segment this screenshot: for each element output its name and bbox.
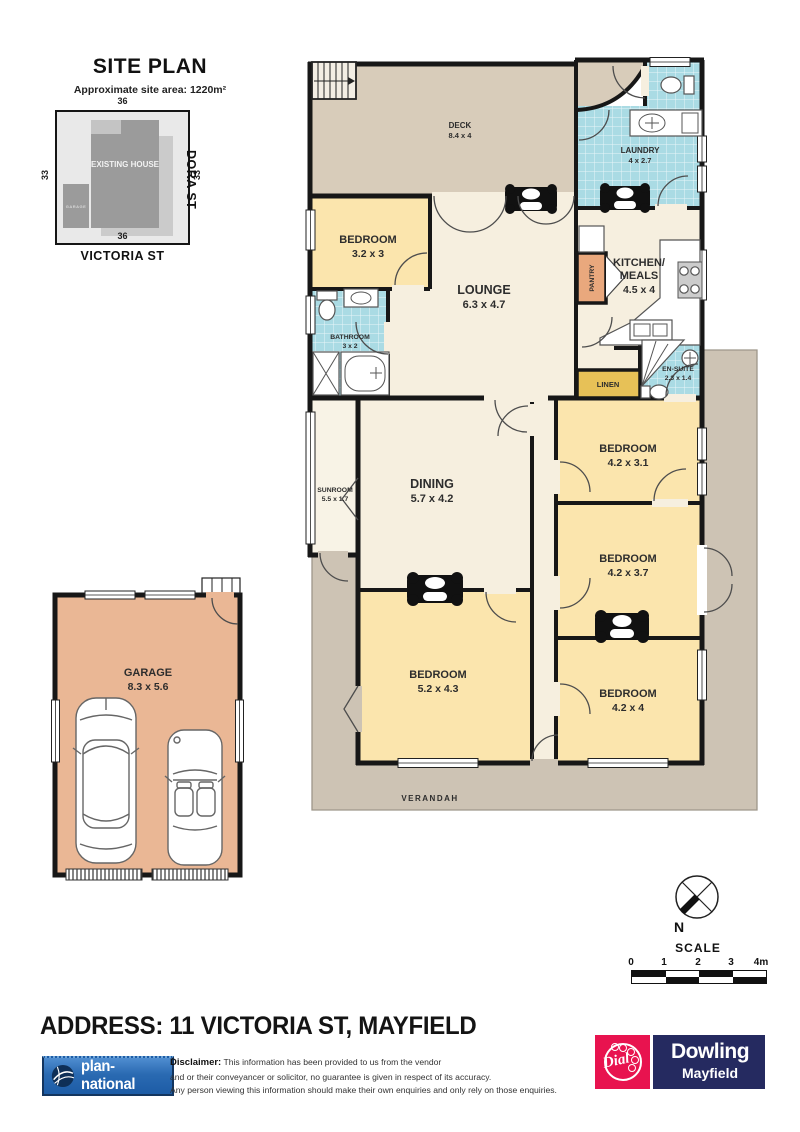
bedroom1-dims: 3.2 x 3 <box>352 248 384 260</box>
fridge-space <box>579 226 604 252</box>
agency-name-block: Dowling Mayfield <box>650 1035 765 1089</box>
bathroom-dims: 3 x 2 <box>342 343 357 350</box>
scale-tick-1: 1 <box>661 957 667 968</box>
main-floor-plan: DECK 8.4 x 4 LAUNDRY 4 x 2.7 BEDROOM 3.2… <box>300 55 762 827</box>
laundry-sink <box>630 110 702 136</box>
garage-door-gap <box>206 592 234 599</box>
kitchen-label-1: KITCHEN/ <box>613 257 665 269</box>
scale-tick-3: 3 <box>728 957 734 968</box>
site-dim-bottom: 36 <box>55 231 190 241</box>
garage-label: GARAGE <box>124 667 172 679</box>
floorplan-page: SITE PLAN Approximate site area: 1220m² … <box>0 0 800 1132</box>
street-victoria: VICTORIA ST <box>55 249 190 263</box>
pantry-label: PANTRY <box>589 264 596 292</box>
disclaimer-label: Disclaimer: <box>170 1057 221 1068</box>
site-plan-subtitle: Approximate site area: 1220m² <box>30 84 270 96</box>
dial-badge: Dial <box>595 1035 650 1089</box>
scale-ticks: 0 1 2 3 4m <box>628 957 768 970</box>
disclaimer-line-2: and or their conveyancer or solicitor, n… <box>170 1072 491 1082</box>
laundry-label: LAUNDRY <box>621 146 660 155</box>
garage-dims: 8.3 x 5.6 <box>128 681 169 693</box>
disclaimer: Disclaimer: This information has been pr… <box>170 1056 562 1097</box>
bedroom2-label: BEDROOM <box>599 443 656 455</box>
wc-toilet <box>661 76 694 94</box>
scale-tick-0: 0 <box>628 957 634 968</box>
site-dim-top: 36 <box>55 96 190 106</box>
kitchen-dims: 4.5 x 4 <box>623 284 655 296</box>
bedroom5-label: BEDROOM <box>599 688 656 700</box>
scale-bar: SCALE 0 1 2 3 4m <box>628 941 768 984</box>
address-line: ADDRESS: 11 VICTORIA ST, MAYFIELD <box>40 1012 476 1041</box>
bedroom1-label: BEDROOM <box>339 234 396 246</box>
deck-dims: 8.4 x 4 <box>449 131 473 140</box>
verandah-label: VERANDAH <box>401 794 458 803</box>
scale-title: SCALE <box>628 941 768 955</box>
ensuite-dims: 2.3 x 1.4 <box>665 375 692 382</box>
plan-national-label: plan-national <box>81 1058 162 1094</box>
bedroom3-dims: 4.2 x 3.7 <box>608 567 649 579</box>
site-garage-box: GARAGE <box>63 184 89 228</box>
agency-logo: Dial Dowling Mayfield <box>595 1035 765 1089</box>
scale-bar-graphic <box>631 970 767 984</box>
street-dora: DORA ST <box>184 150 198 240</box>
scale-tick-4: 4m <box>754 957 768 968</box>
plan-national-logo: plan-national <box>42 1056 174 1096</box>
site-dim-left: 33 <box>40 170 50 180</box>
bedroom5-dims: 4.2 x 4 <box>612 702 644 714</box>
compass: N <box>660 870 736 940</box>
ensuite-label: EN-SUITE <box>662 366 694 373</box>
scale-tick-2: 2 <box>695 957 701 968</box>
site-house-porch <box>91 120 121 134</box>
sunroom-dims: 5.5 x 1.7 <box>322 496 349 503</box>
bathroom-label: BATHROOM <box>330 334 370 341</box>
car-sedan <box>73 698 139 863</box>
lounge-label: LOUNGE <box>457 283 510 297</box>
site-plan-title: SITE PLAN <box>40 55 260 79</box>
garage-step <box>202 578 240 593</box>
linen-label: LINEN <box>597 380 620 389</box>
site-garage-label: GARAGE <box>66 204 87 209</box>
bedroom5-room <box>556 638 702 763</box>
dining-label: DINING <box>410 477 454 491</box>
site-existing-house <box>91 120 159 228</box>
garage-roller-door-2 <box>152 869 228 880</box>
deck-label: DECK <box>449 121 472 130</box>
globe-icon <box>50 1062 76 1090</box>
lounge-dims: 6.3 x 4.7 <box>463 299 506 311</box>
bedroom2-dims: 4.2 x 3.1 <box>608 457 649 469</box>
agency-suburb: Mayfield <box>653 1065 767 1081</box>
site-plot: EXISTING HOUSE GARAGE <box>55 110 190 245</box>
bedroom3-label: BEDROOM <box>599 553 656 565</box>
sunroom-label: SUNROOM <box>317 487 353 494</box>
compass-north-label: N <box>674 919 684 935</box>
garage-plan: GARAGE 8.3 x 5.6 <box>40 575 252 890</box>
bedroom4-label: BEDROOM <box>409 669 466 681</box>
garage-roller-door-1 <box>66 869 142 880</box>
laundry-dims: 4 x 2.7 <box>629 156 652 165</box>
kitchen-label-2: MEALS <box>620 270 659 282</box>
disclaimer-line-3: Any person viewing this information shou… <box>170 1085 557 1095</box>
site-house-label: EXISTING HOUSE <box>91 160 159 170</box>
deck-stairs <box>312 62 356 99</box>
car-convertible <box>165 730 225 865</box>
dining-dims: 5.7 x 4.2 <box>411 493 454 505</box>
sunroom-room <box>312 398 358 555</box>
agency-name: Dowling <box>653 1040 767 1064</box>
bedroom4-dims: 5.2 x 4.3 <box>418 683 459 695</box>
disclaimer-line-1: This information has been provided to us… <box>223 1057 441 1067</box>
